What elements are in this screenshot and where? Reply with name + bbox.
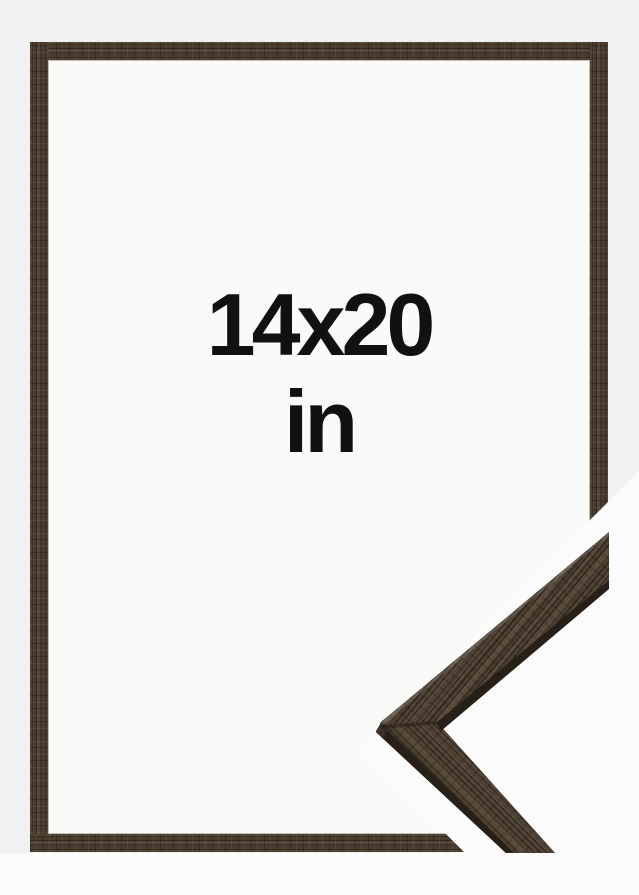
frame-size-unit: in xyxy=(30,373,608,470)
corner-detail-bottom-margin xyxy=(0,853,639,895)
frame-size-value: 14x20 xyxy=(30,276,608,373)
frame-border-top xyxy=(30,42,608,60)
product-image: { "size_label": { "line1": "14x20", "lin… xyxy=(0,0,639,895)
frame-size-label: 14x20 in xyxy=(30,276,608,470)
